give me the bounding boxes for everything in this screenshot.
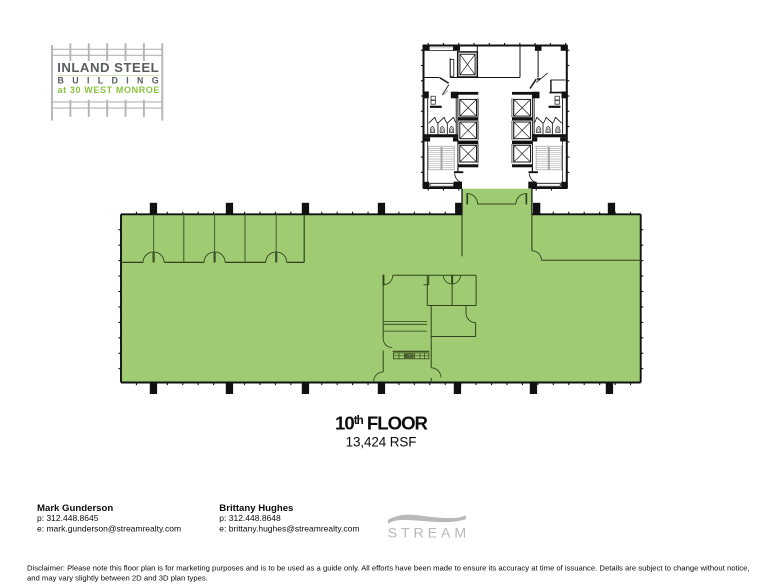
svg-text:e: brittany.hughes@streamrealt: e: brittany.hughes@streamrealty.com xyxy=(219,523,359,533)
svg-text:at 30 WEST MONROE: at 30 WEST MONROE xyxy=(58,85,161,95)
svg-text:p: 312.448.8645: p: 312.448.8645 xyxy=(37,513,99,523)
svg-text:p: 312.448.8648: p: 312.448.8648 xyxy=(219,513,281,523)
svg-text:10th FLOOR: 10th FLOOR xyxy=(335,412,429,433)
svg-text:STREAM: STREAM xyxy=(388,526,471,542)
svg-text:INLAND STEEL: INLAND STEEL xyxy=(57,60,159,75)
svg-text:and may vary slightly between: and may vary slightly between 2D and 3D … xyxy=(27,574,208,583)
svg-text:e: mark.gunderson@streamrealty: e: mark.gunderson@streamrealty.com xyxy=(37,523,181,533)
svg-text:13,424 RSF: 13,424 RSF xyxy=(346,435,417,450)
svg-text:Disclaimer: Please note this f: Disclaimer: Please note this floor plan … xyxy=(27,564,750,573)
